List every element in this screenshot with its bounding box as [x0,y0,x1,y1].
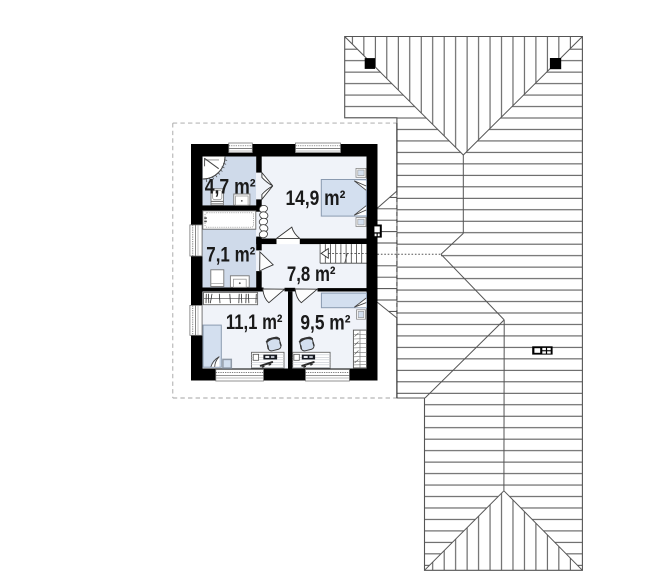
svg-text:11,1 m²: 11,1 m² [226,311,283,334]
svg-text:7,8 m²: 7,8 m² [287,263,336,286]
svg-text:9,5 m²: 9,5 m² [300,311,350,334]
svg-text:7,1 m²: 7,1 m² [206,244,255,267]
svg-text:14,9 m²: 14,9 m² [286,187,346,210]
svg-text:4,7 m²: 4,7 m² [205,175,256,198]
